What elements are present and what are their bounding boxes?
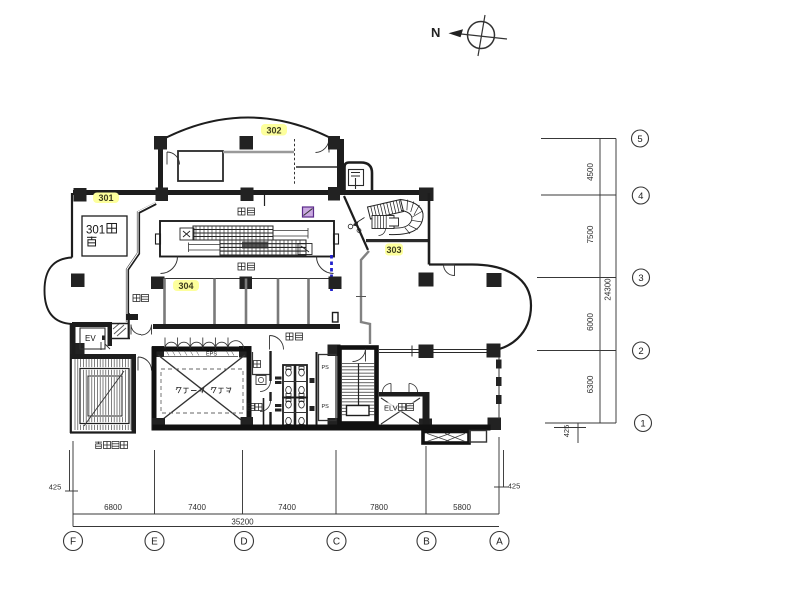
svg-text:425: 425 <box>508 482 521 491</box>
svg-text:7500: 7500 <box>586 225 595 243</box>
svg-text:5800: 5800 <box>453 503 471 512</box>
svg-text:301: 301 <box>98 193 113 203</box>
svg-text:5: 5 <box>637 134 642 145</box>
svg-text:B: B <box>423 537 430 548</box>
svg-text:D: D <box>240 537 247 548</box>
svg-text:4500: 4500 <box>586 163 595 181</box>
svg-text:PS: PS <box>322 365 330 371</box>
svg-text:6800: 6800 <box>104 503 122 512</box>
svg-text:425: 425 <box>562 425 571 438</box>
svg-text:304: 304 <box>178 281 193 291</box>
svg-text:C: C <box>333 537 340 548</box>
svg-text:303: 303 <box>386 245 401 255</box>
svg-text:E: E <box>151 537 158 548</box>
svg-text:6300: 6300 <box>586 375 595 393</box>
svg-text:EPS: EPS <box>206 352 217 358</box>
svg-text:PS: PS <box>322 404 330 410</box>
svg-text:3: 3 <box>638 273 643 284</box>
svg-text:EV: EV <box>85 334 96 343</box>
svg-text:4: 4 <box>638 191 643 202</box>
svg-text:24300: 24300 <box>604 278 613 301</box>
svg-text:35200: 35200 <box>231 518 254 527</box>
svg-text:7400: 7400 <box>278 503 296 512</box>
svg-text:2: 2 <box>638 346 643 357</box>
svg-text:ELV: ELV <box>384 404 398 413</box>
svg-text:F: F <box>70 537 76 548</box>
svg-text:301: 301 <box>86 225 105 237</box>
svg-text:7800: 7800 <box>370 503 388 512</box>
svg-text:6000: 6000 <box>586 313 595 331</box>
svg-text:302: 302 <box>266 126 281 136</box>
svg-text:1: 1 <box>640 419 645 430</box>
svg-text:A: A <box>496 537 503 548</box>
svg-text:N: N <box>431 25 440 40</box>
svg-text:7400: 7400 <box>188 503 206 512</box>
svg-text:425: 425 <box>49 483 62 492</box>
